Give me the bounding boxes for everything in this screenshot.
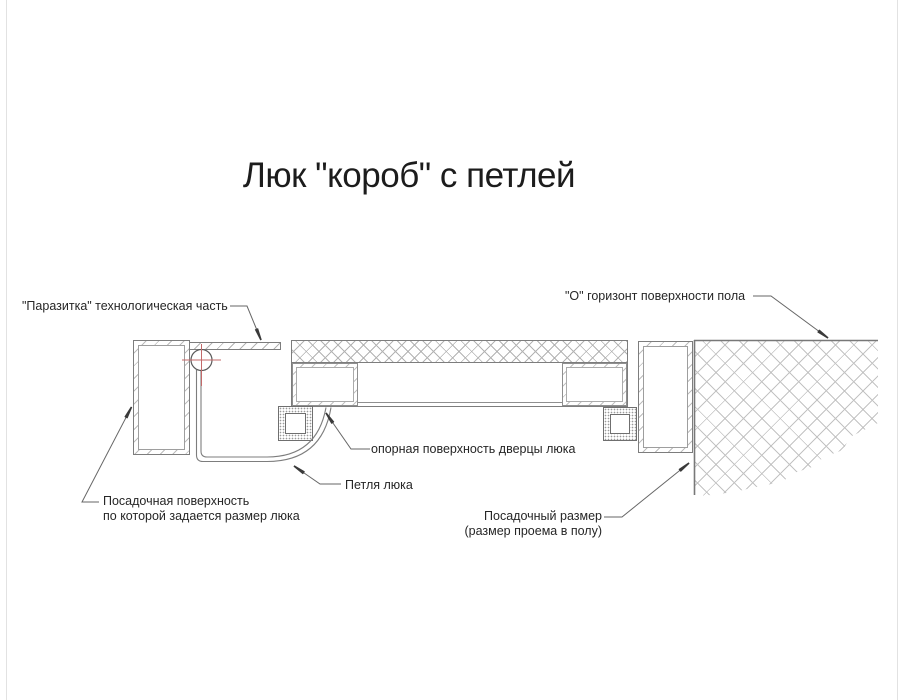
diagram-canvas: Люк "короб" с петлей "Паразитка" техноло… — [0, 0, 900, 700]
door-top-plate — [291, 340, 628, 363]
page-left-border — [6, 0, 7, 700]
label-floor-horizon: "О" горизонт поверхности пола — [565, 289, 745, 304]
label-seat-surface-line1: Посадочная поверхность — [103, 494, 300, 509]
leader-seat-size — [604, 463, 689, 517]
left-frame-inner — [138, 345, 185, 450]
leader-parasitka — [230, 306, 261, 340]
left-frame-profile — [133, 340, 190, 455]
label-support-surface: опорная поверхность дверцы люка — [371, 442, 575, 457]
right-frame-inner — [643, 346, 688, 448]
label-hinge: Петля люка — [345, 478, 413, 493]
page-right-border — [897, 0, 898, 700]
door-left-insert-inner — [296, 367, 354, 402]
leader-hinge — [294, 466, 341, 484]
leader-seat-surface — [82, 407, 132, 502]
parasitka-strip — [189, 342, 281, 350]
hinge-block-section — [278, 406, 313, 441]
right-frame-profile — [638, 341, 693, 453]
label-seat-size-line1: Посадочный размер — [442, 509, 602, 524]
label-parasitka: "Паразитка" технологическая часть — [22, 299, 228, 314]
door-bottom-inner-line — [358, 402, 562, 403]
label-seat-surface-line2: по которой задается размер люка — [103, 509, 300, 524]
hinge-block-inner — [285, 413, 306, 434]
door-left-insert — [292, 363, 358, 406]
door-right-insert — [562, 363, 627, 406]
diagram-title: Люк "короб" с петлей — [0, 156, 818, 196]
latch-block-inner — [610, 414, 630, 434]
leader-floor-horizon — [753, 296, 828, 338]
label-seat-size-line2: (размер проема в полу) — [442, 524, 602, 539]
leader-support-surface — [326, 413, 370, 449]
floor-hatch-fill — [694, 340, 878, 497]
door-body — [291, 363, 628, 407]
label-seat-surface: Посадочная поверхность по которой задает… — [103, 494, 300, 524]
hinge-pin-circle — [191, 350, 212, 371]
door-right-insert-inner — [566, 367, 623, 402]
label-seat-size: Посадочный размер (размер проема в полу) — [442, 509, 602, 539]
latch-block-section — [603, 407, 637, 441]
